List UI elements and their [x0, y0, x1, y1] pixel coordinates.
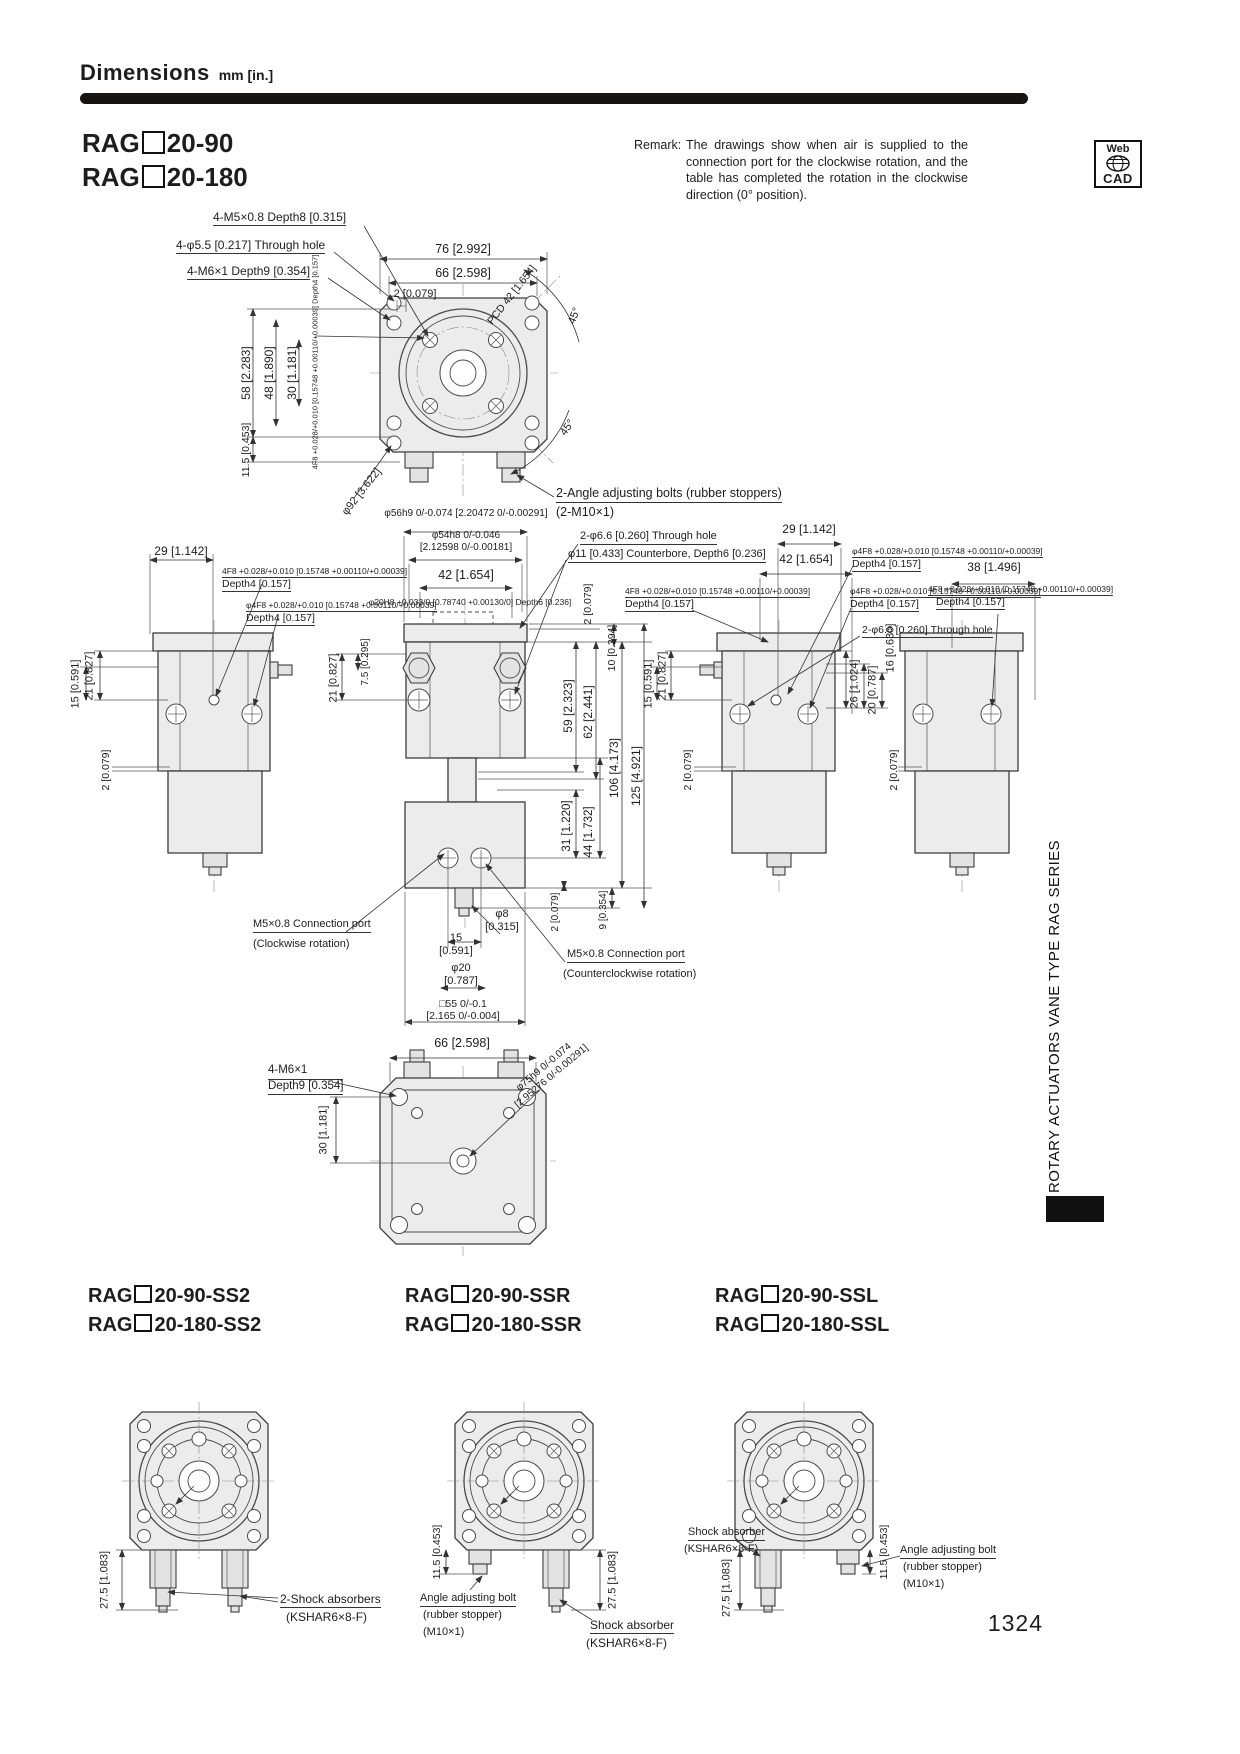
tol-4f8-farright-depth: Depth4 [0.157]: [936, 596, 1005, 610]
dim-31: 31 [1.220]: [561, 800, 575, 851]
model-suffix: 20-90-SS2: [154, 1285, 250, 1307]
dim-2-center-right: 2 [0.079]: [582, 584, 594, 625]
label-shock-ssl: Shock absorber: [688, 1526, 765, 1541]
label-port-ccw-2: (Counterclockwise rotation): [563, 968, 696, 981]
tol-4f8-left1: 4F8 +0.028/+0.010 [0.15748 +0.00110/+0.0…: [222, 566, 407, 578]
dim-29-right: 29 [1.142]: [782, 522, 835, 536]
dim-275-ss2: 27.5 [1.083]: [99, 1551, 112, 1609]
dim-66-bottomview: 66 [2.598]: [434, 1036, 490, 1051]
tol-4f8-rmid: 4F8 +0.028/+0.010 [0.15748 +0.00110/+0.0…: [625, 586, 810, 598]
label-anglebolt-ssr: Angle adjusting bolt: [420, 1592, 516, 1607]
dim-30-bottomview: 30 [1.181]: [318, 1106, 331, 1155]
dim-2-top: 2 [0.079]: [394, 288, 437, 301]
dim-59: 59 [2.323]: [561, 679, 575, 732]
tol-phi4f8-r2-depth: Depth4 [0.157]: [850, 598, 919, 612]
dim-26: 26 [1.024]: [849, 660, 862, 709]
dim-15-ports: 15[0.591]: [439, 932, 473, 958]
dim-10: 10 [0.394]: [606, 625, 618, 672]
model-suffix: 20-90-SSR: [471, 1285, 570, 1307]
label-anglebolt-ssr-3: (M10×1): [423, 1626, 464, 1639]
model-code-box: [134, 1285, 152, 1303]
dim-2-left: 2 [0.079]: [100, 750, 112, 791]
model-heading-line: RAG20-90-SS2: [88, 1282, 261, 1311]
dim-2-farright: 2 [0.079]: [888, 750, 900, 791]
dim-58: 58 [2.283]: [239, 346, 253, 399]
dim-21-center: 21 [0.827]: [328, 654, 341, 703]
dim-9: 9 [0.354]: [598, 891, 610, 930]
dim-45-upper: 45°: [566, 306, 584, 326]
dim-30-top: 30 [1.181]: [285, 346, 299, 399]
model-code-box: [451, 1285, 469, 1303]
model-suffix: 20-90-SSL: [781, 1285, 878, 1307]
dim-125: 125 [4.921]: [629, 746, 643, 806]
dim-62: 62 [2.441]: [581, 685, 595, 738]
dim-45-lower: 45°: [558, 417, 578, 438]
model-heading-ssl: RAG20-90-SSLRAG20-180-SSL: [715, 1282, 889, 1340]
label-port-cw: M5×0.8 Connection port: [253, 918, 371, 933]
sidebar-series-title: ROTARY ACTUATORS VANE TYPE RAG SERIES: [1046, 818, 1063, 1193]
dim-phi8: φ8[0.315]: [485, 908, 519, 934]
model-suffix: 20-180-SSL: [781, 1314, 889, 1336]
dim-20: 20 [0.787]: [867, 666, 880, 715]
label-shock-ss2-type: (KSHAR6×8-F): [286, 1610, 367, 1624]
label-shock-ssl-type: (KSHAR6×8-F): [684, 1543, 758, 1556]
model-heading-ss2: RAG20-90-SS2RAG20-180-SS2: [88, 1282, 261, 1340]
dim-75-center: 7.5 [0.295]: [360, 638, 372, 685]
dim-42-right: 42 [1.654]: [779, 552, 832, 566]
dim-44: 44 [1.732]: [583, 806, 597, 857]
label-4m6-depth9: 4-M6×1 Depth9 [0.354]: [187, 264, 310, 280]
label-shock-ssr: Shock absorber: [590, 1618, 674, 1634]
model-suffix: 20-180-SSR: [471, 1314, 581, 1336]
dim-275-ssl: 27.5 [1.083]: [721, 1559, 734, 1617]
dim-115-ssl: 11.5 [0.453]: [878, 1525, 890, 1580]
label-shock-ssr-type: (KSHAR6×8-F): [586, 1636, 667, 1650]
model-prefix: RAG: [88, 1285, 132, 1307]
tol-phi4f8-r1: φ4F8 +0.028/+0.010 [0.15748 +0.00110/+0.…: [852, 546, 1043, 558]
model-prefix: RAG: [715, 1314, 759, 1336]
dim-phi92: φ92 [3.622]: [340, 466, 385, 518]
dim-sq55: □55 0/-0.1[2.165 0/-0.004]: [426, 998, 500, 1023]
model-heading-line: RAG20-90-SSR: [405, 1282, 582, 1311]
model-heading-line: RAG20-180-SSR: [405, 1311, 582, 1340]
dim-115-ssr: 11.5 [0.453]: [431, 1525, 443, 1580]
model-heading-line: RAG20-180-SS2: [88, 1311, 261, 1340]
dim-2-center-bottom: 2 [0.079]: [550, 893, 562, 932]
dim-21-left: 21 [0.827]: [84, 652, 97, 701]
page-number: 1324: [925, 1610, 1043, 1637]
dim-42-center: 42 [1.654]: [438, 568, 494, 583]
model-heading-ssr: RAG20-90-SSRRAG20-180-SSR: [405, 1282, 582, 1340]
dim-phi54h8: φ54h8 0/-0.046[2.12598 0/-0.00181]: [420, 530, 512, 554]
dim-66-top: 66 [2.598]: [435, 266, 491, 281]
label-4m6-bottomview: 4-M6×1Depth9 [0.354]: [268, 1064, 343, 1095]
label-2phi66-right: 2-φ6.6 [0.260] Through hole: [862, 624, 993, 638]
tol-4f8-rmid-depth: Depth4 [0.157]: [625, 598, 694, 612]
model-heading-line: RAG20-180-SSL: [715, 1311, 889, 1340]
dim-76: 76 [2.992]: [435, 242, 491, 257]
label-anglebolt-ssl: Angle adjusting bolt: [900, 1544, 996, 1559]
sidebar-index-tab: [1046, 1196, 1104, 1222]
dim-38: 38 [1.496]: [967, 560, 1020, 574]
catalog-page: Dimensionsmm [in.] RAG20-90RAG20-180 Rem…: [0, 0, 1240, 1754]
dim-15-left: 15 [0.591]: [70, 660, 83, 709]
dim-phi75h9: φ75h9 0/-0.074[2.95276 0/-0.00291]: [505, 1033, 591, 1110]
dim-29-left: 29 [1.142]: [154, 544, 207, 558]
tol-phi4f8-left2: φ4F8 +0.028/+0.010 [0.15748 +0.00110/+0.…: [246, 600, 437, 612]
label-port-ccw: M5×0.8 Connection port: [567, 948, 685, 963]
label-2phi66-center: 2-φ6.6 [0.260] Through hole: [580, 530, 717, 545]
model-prefix: RAG: [405, 1285, 449, 1307]
dim-phi56h9: φ56h9 0/-0.074 [2.20472 0/-0.00291]: [384, 508, 547, 520]
label-anglebolt-ssl-2: (rubber stopper): [903, 1561, 982, 1574]
label-anglebolt-ssl-3: (M10×1): [903, 1578, 944, 1591]
dim-phi20: φ20[0.787]: [444, 962, 478, 988]
model-code-box: [451, 1314, 469, 1332]
dim-15-rmid: 15 [0.591]: [643, 660, 656, 709]
dim-106: 106 [4.173]: [607, 738, 621, 798]
tol-4f8-left1-depth: Depth4 [0.157]: [222, 578, 291, 592]
model-heading-line: RAG20-90-SSL: [715, 1282, 889, 1311]
dim-21-rmid: 21 [0.827]: [657, 652, 670, 701]
model-code-box: [134, 1314, 152, 1332]
dim-2-rmid: 2 [0.079]: [682, 750, 694, 791]
tol-phi4f8-r1-depth: Depth4 [0.157]: [852, 558, 921, 572]
dim-275-ssr: 27.5 [1.083]: [607, 1551, 620, 1609]
tol-4f8-farright: 4F8 +0.028/+0.010 [0.15748 +0.00110/+0.0…: [928, 584, 1113, 596]
model-suffix: 20-180-SS2: [154, 1314, 261, 1336]
tol-4f8-topview: 4F8 +0.028/+0.010 [0.15748 +0.00110/+0.0…: [312, 255, 321, 470]
tol-phi4f8-left2-depth: Depth4 [0.157]: [246, 612, 315, 626]
label-shock-ss2: 2-Shock absorbers: [280, 1592, 381, 1608]
model-prefix: RAG: [715, 1285, 759, 1307]
model-code-box: [761, 1285, 779, 1303]
dim-48: 48 [1.890]: [262, 346, 276, 399]
label-4phi55-through: 4-φ5.5 [0.217] Through hole: [176, 238, 325, 254]
label-anglebolt-ssr-2: (rubber stopper): [423, 1609, 502, 1622]
label-port-cw-2: (Clockwise rotation): [253, 938, 350, 951]
label-phi11-counterbore: φ11 [0.433] Counterbore, Depth6 [0.236]: [568, 548, 766, 563]
model-prefix: RAG: [405, 1314, 449, 1336]
model-prefix: RAG: [88, 1314, 132, 1336]
label-angle-bolts-2: (2-M10×1): [556, 505, 614, 520]
dim-115-top: 11.5 [0.453]: [240, 423, 252, 478]
dim-pcd42: PCD 42 [1.654]: [485, 263, 539, 327]
model-code-box: [761, 1314, 779, 1332]
label-4m5-depth8: 4-M5×0.8 Depth8 [0.315]: [213, 210, 346, 226]
dim-16: 16 [0.630]: [885, 624, 898, 673]
label-angle-bolts: 2-Angle adjusting bolts (rubber stoppers…: [556, 486, 782, 503]
